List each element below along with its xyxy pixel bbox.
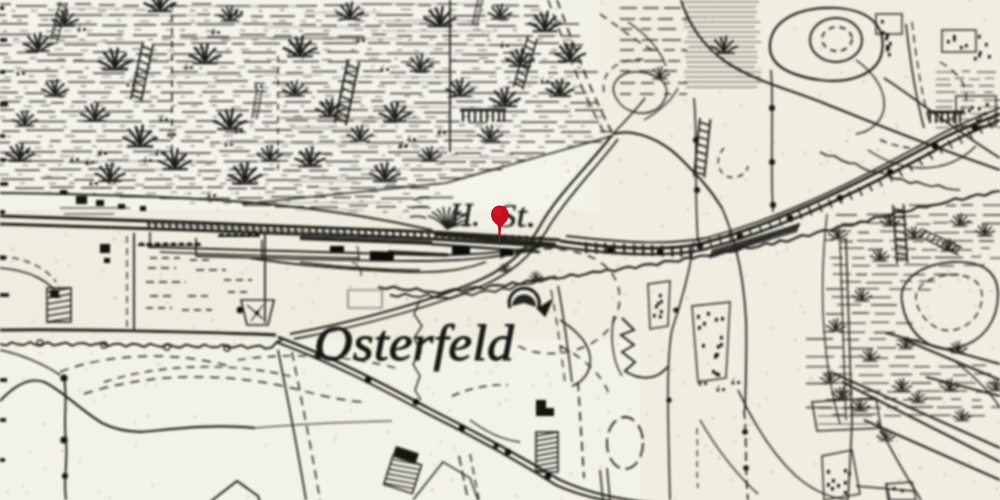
svg-text:H.: H. [449, 196, 480, 233]
svg-text:Osterfeld: Osterfeld [314, 315, 515, 371]
